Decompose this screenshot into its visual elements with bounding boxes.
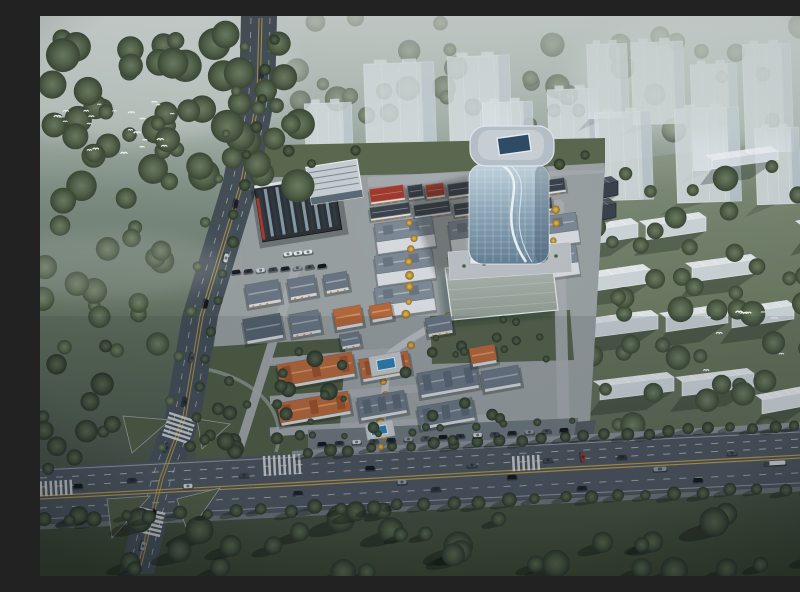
aerial-rendering: Aerial architectural rendering - mixed-u… — [40, 16, 800, 576]
rendering-canvas — [40, 16, 800, 576]
vignette — [40, 16, 800, 576]
